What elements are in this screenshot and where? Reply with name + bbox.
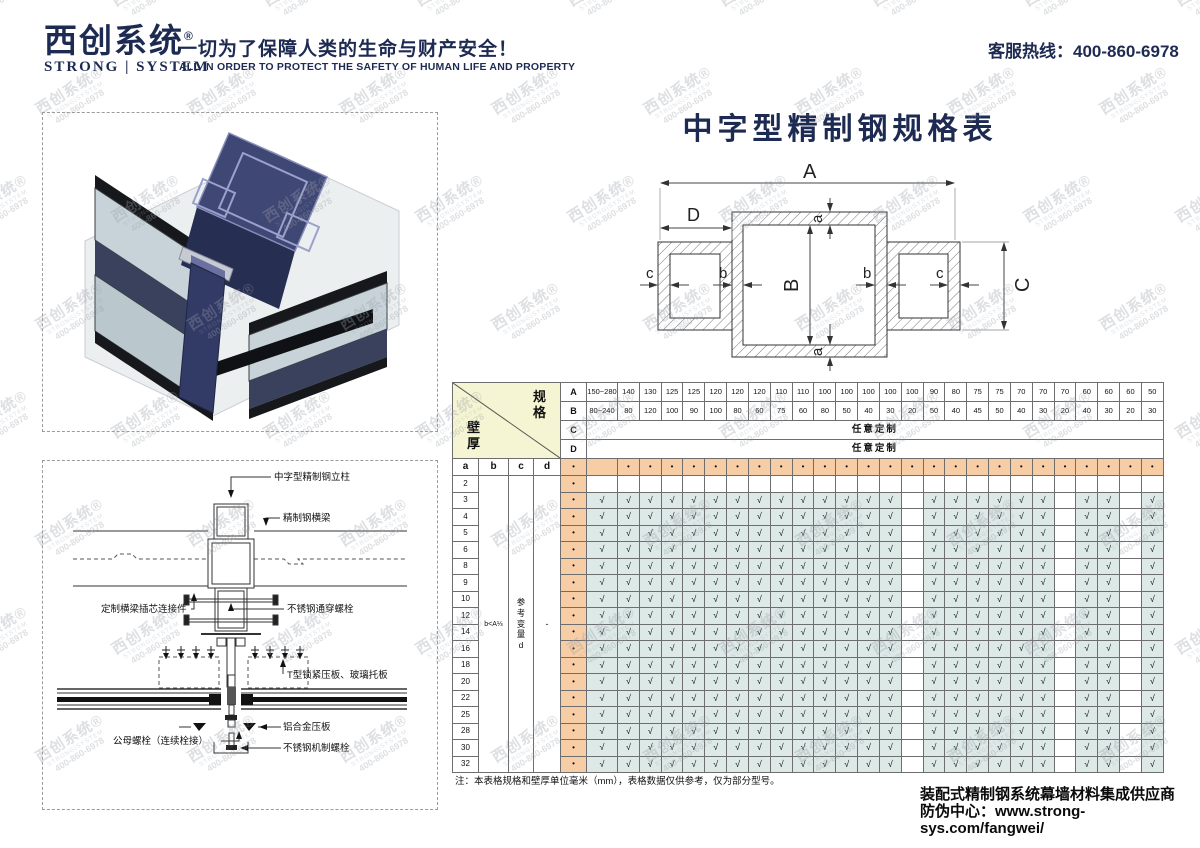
watermark: 西创系统®STRONG|SYSTEM400-860-6978: [489, 280, 570, 347]
dot-cell: •: [561, 624, 587, 641]
check-cell: √: [618, 657, 640, 674]
check-cell: √: [1010, 624, 1032, 641]
check-cell: √: [858, 558, 880, 575]
check-cell: √: [858, 707, 880, 724]
check-cell: √: [1141, 674, 1163, 691]
check-cell: √: [705, 756, 727, 773]
column-section: [208, 504, 254, 631]
check-cell: √: [858, 690, 880, 707]
empty-cell: [1120, 624, 1142, 641]
check-cell: √: [1141, 707, 1163, 724]
check-cell: √: [1032, 509, 1054, 526]
check-cell: √: [923, 509, 945, 526]
check-cell: √: [836, 740, 858, 757]
check-cell: √: [792, 591, 814, 608]
dot-cell: •: [561, 740, 587, 757]
watermark: 西创系统®STRONG|SYSTEM400-860-6978: [413, 0, 494, 23]
render-3d: [43, 113, 437, 431]
check-cell: √: [792, 525, 814, 542]
spec-value-cell: 45: [967, 402, 989, 421]
empty-cell: [1098, 476, 1120, 493]
spec-value-cell: 80: [727, 402, 749, 421]
check-cell: √: [748, 608, 770, 625]
check-cell: √: [661, 641, 683, 658]
check-cell: √: [587, 575, 618, 592]
dot-cell: •: [561, 641, 587, 658]
check-cell: √: [705, 509, 727, 526]
check-cell: √: [879, 657, 901, 674]
check-cell: √: [945, 492, 967, 509]
spec-value-cell: 110: [770, 383, 792, 402]
spec-value-cell: 30: [1141, 402, 1163, 421]
corner-header-cell: 规格壁厚: [453, 383, 561, 459]
watermark: 西创系统®STRONG|SYSTEM400-860-6978: [489, 64, 570, 131]
check-cell: √: [989, 624, 1011, 641]
spec-value-cell: 120: [705, 383, 727, 402]
spec-value-cell: 50: [923, 402, 945, 421]
thickness-value-cell: 16: [453, 641, 479, 658]
check-cell: √: [945, 558, 967, 575]
check-cell: √: [748, 723, 770, 740]
check-cell: √: [879, 674, 901, 691]
check-cell: √: [879, 542, 901, 559]
check-cell: √: [587, 591, 618, 608]
check-cell: √: [1032, 641, 1054, 658]
check-cell: √: [770, 723, 792, 740]
empty-cell: [1120, 492, 1142, 509]
check-cell: √: [989, 525, 1011, 542]
check-cell: √: [705, 591, 727, 608]
thickness-value-cell: 5: [453, 525, 479, 542]
check-cell: √: [989, 756, 1011, 773]
empty-cell: [901, 591, 923, 608]
empty-cell: [705, 476, 727, 493]
empty-cell: [1054, 674, 1076, 691]
spec-value-cell: 30: [1098, 402, 1120, 421]
check-cell: √: [748, 624, 770, 641]
check-cell: √: [1010, 657, 1032, 674]
d-note-cell: -: [534, 476, 561, 773]
check-cell: √: [1141, 756, 1163, 773]
check-cell: √: [618, 641, 640, 658]
watermark: 西创系统®STRONG|SYSTEM400-860-6978: [1021, 0, 1102, 23]
check-cell: √: [748, 756, 770, 773]
thickness-value-cell: 18: [453, 657, 479, 674]
empty-cell: [901, 657, 923, 674]
check-cell: √: [618, 492, 640, 509]
check-cell: √: [858, 740, 880, 757]
check-cell: √: [587, 525, 618, 542]
check-cell: √: [858, 756, 880, 773]
check-cell: √: [1141, 740, 1163, 757]
check-cell: √: [989, 608, 1011, 625]
dot-cell: [587, 459, 618, 476]
check-cell: √: [1098, 641, 1120, 658]
check-cell: √: [618, 756, 640, 773]
dot-cell: •: [945, 459, 967, 476]
watermark: 西创系统®STRONG|SYSTEM400-860-6978: [717, 0, 798, 23]
thickness-col-header: c: [509, 459, 534, 476]
check-cell: √: [1098, 608, 1120, 625]
check-cell: √: [727, 492, 749, 509]
empty-cell: [1054, 756, 1076, 773]
empty-cell: [748, 476, 770, 493]
spec-row-label: D: [561, 440, 587, 459]
spec-value-cell: 60: [1098, 383, 1120, 402]
empty-cell: [1054, 657, 1076, 674]
footer-line2: 防伪中心：www.strong-sys.com/fangwei/: [920, 803, 1200, 837]
empty-cell: [901, 509, 923, 526]
dim-c-right: c: [936, 265, 944, 282]
empty-cell: [1032, 476, 1054, 493]
check-cell: √: [923, 723, 945, 740]
dim-C: C: [1012, 278, 1034, 292]
empty-cell: [923, 476, 945, 493]
check-cell: √: [727, 624, 749, 641]
check-cell: √: [705, 492, 727, 509]
check-cell: √: [836, 575, 858, 592]
check-cell: √: [1032, 624, 1054, 641]
dot-cell: •: [561, 690, 587, 707]
page: 西创系统® STRONG | SYSTEM 一切为了保障人类的生命与财产安全！ …: [0, 0, 1200, 848]
check-cell: √: [618, 591, 640, 608]
check-cell: √: [1141, 690, 1163, 707]
check-cell: √: [683, 674, 705, 691]
dot-cell: •: [561, 674, 587, 691]
check-cell: √: [683, 509, 705, 526]
spec-value-cell: 130: [639, 383, 661, 402]
empty-cell: [661, 476, 683, 493]
check-cell: √: [748, 674, 770, 691]
check-cell: √: [1010, 707, 1032, 724]
check-cell: √: [836, 542, 858, 559]
spec-value-cell: 100: [879, 383, 901, 402]
empty-cell: [1054, 525, 1076, 542]
check-cell: √: [639, 674, 661, 691]
dot-cell: •: [661, 459, 683, 476]
check-cell: √: [967, 674, 989, 691]
check-cell: √: [1076, 723, 1098, 740]
check-cell: √: [989, 558, 1011, 575]
check-cell: √: [1076, 624, 1098, 641]
empty-cell: [901, 492, 923, 509]
check-cell: √: [705, 575, 727, 592]
check-cell: √: [587, 492, 618, 509]
empty-cell: [901, 674, 923, 691]
check-cell: √: [1010, 558, 1032, 575]
check-cell: √: [814, 723, 836, 740]
check-cell: √: [770, 624, 792, 641]
empty-cell: [1120, 542, 1142, 559]
check-cell: √: [945, 591, 967, 608]
empty-cell: [901, 476, 923, 493]
empty-cell: [1054, 690, 1076, 707]
check-cell: √: [945, 509, 967, 526]
check-cell: √: [967, 575, 989, 592]
check-cell: √: [587, 740, 618, 757]
thickness-value-cell: 4: [453, 509, 479, 526]
cross-section-wrap: A D a a B C b b c c: [615, 160, 1045, 390]
check-cell: √: [1010, 509, 1032, 526]
check-cell: √: [587, 509, 618, 526]
empty-cell: [639, 476, 661, 493]
empty-cell: [1120, 657, 1142, 674]
dot-cell: •: [814, 459, 836, 476]
check-cell: √: [792, 723, 814, 740]
check-cell: √: [945, 624, 967, 641]
check-cell: √: [683, 575, 705, 592]
check-cell: √: [639, 492, 661, 509]
check-cell: √: [1098, 690, 1120, 707]
check-cell: √: [1098, 674, 1120, 691]
spec-value-cell: 20: [1054, 402, 1076, 421]
check-cell: √: [945, 674, 967, 691]
check-cell: √: [923, 707, 945, 724]
check-cell: √: [967, 525, 989, 542]
check-cell: √: [923, 690, 945, 707]
check-cell: √: [748, 641, 770, 658]
empty-cell: [901, 525, 923, 542]
dot-cell: •: [561, 542, 587, 559]
check-cell: √: [705, 707, 727, 724]
check-cell: √: [661, 756, 683, 773]
dot-cell: •: [879, 459, 901, 476]
empty-cell: [901, 542, 923, 559]
check-cell: √: [587, 756, 618, 773]
check-cell: √: [814, 525, 836, 542]
dot-cell: •: [923, 459, 945, 476]
check-cell: √: [683, 641, 705, 658]
check-cell: √: [967, 740, 989, 757]
thickness-value-cell: 32: [453, 756, 479, 773]
check-cell: √: [639, 591, 661, 608]
check-cell: √: [989, 575, 1011, 592]
check-cell: √: [618, 624, 640, 641]
check-cell: √: [967, 690, 989, 707]
check-cell: √: [639, 690, 661, 707]
dot-cell: •: [858, 459, 880, 476]
check-cell: √: [1032, 558, 1054, 575]
spec-value-cell: 80: [618, 402, 640, 421]
check-cell: √: [705, 624, 727, 641]
check-cell: √: [727, 707, 749, 724]
check-cell: √: [683, 558, 705, 575]
check-cell: √: [814, 575, 836, 592]
spec-value-cell: 40: [945, 402, 967, 421]
check-cell: √: [639, 525, 661, 542]
dot-cell: •: [989, 459, 1011, 476]
check-cell: √: [945, 657, 967, 674]
dot-cell: •: [561, 492, 587, 509]
spec-value-cell: 140: [618, 383, 640, 402]
check-cell: √: [1010, 591, 1032, 608]
check-cell: √: [661, 525, 683, 542]
check-cell: √: [639, 723, 661, 740]
spec-value-cell: 40: [858, 402, 880, 421]
check-cell: √: [858, 492, 880, 509]
spec-value-cell: 75: [967, 383, 989, 402]
check-cell: √: [923, 608, 945, 625]
check-cell: √: [618, 674, 640, 691]
dot-cell: •: [1010, 459, 1032, 476]
check-cell: √: [967, 723, 989, 740]
check-cell: √: [989, 707, 1011, 724]
spec-value-cell: 100: [814, 383, 836, 402]
check-cell: √: [1076, 756, 1098, 773]
check-cell: √: [727, 674, 749, 691]
check-cell: √: [836, 558, 858, 575]
check-cell: √: [1098, 575, 1120, 592]
dot-cell: •: [792, 459, 814, 476]
label-male-female-bolt: 公母螺栓（连续栓接）: [113, 735, 208, 747]
check-cell: √: [705, 558, 727, 575]
check-cell: √: [1076, 608, 1098, 625]
check-cell: √: [945, 525, 967, 542]
check-cell: √: [923, 492, 945, 509]
thickness-value-cell: 30: [453, 740, 479, 757]
check-cell: √: [683, 591, 705, 608]
empty-cell: [879, 476, 901, 493]
check-cell: √: [836, 641, 858, 658]
empty-cell: [1054, 476, 1076, 493]
watermark: 西创系统®STRONG|SYSTEM400-860-6978: [109, 0, 190, 23]
section-body: [658, 212, 960, 357]
dim-a-bottom: a: [809, 347, 826, 356]
spec-value-cell: 80~240: [587, 402, 618, 421]
check-cell: √: [923, 674, 945, 691]
label-alu-plate: 铝合金压板: [283, 721, 331, 733]
check-cell: √: [858, 674, 880, 691]
check-cell: √: [814, 558, 836, 575]
check-cell: √: [814, 756, 836, 773]
check-cell: √: [989, 723, 1011, 740]
empty-cell: [1120, 690, 1142, 707]
check-cell: √: [1010, 492, 1032, 509]
check-cell: √: [989, 657, 1011, 674]
spec-value-cell: 80: [814, 402, 836, 421]
check-cell: √: [1010, 608, 1032, 625]
check-cell: √: [748, 542, 770, 559]
through-bolts: [184, 595, 278, 625]
thickness-value-cell: 8: [453, 558, 479, 575]
check-cell: √: [639, 756, 661, 773]
watermark: 西创系统®STRONG|SYSTEM400-860-6978: [1173, 604, 1200, 671]
check-cell: √: [923, 591, 945, 608]
dot-cell: •: [901, 459, 923, 476]
check-cell: √: [923, 624, 945, 641]
check-cell: √: [989, 492, 1011, 509]
check-cell: √: [879, 740, 901, 757]
watermark: 西创系统®STRONG|SYSTEM400-860-6978: [0, 0, 39, 23]
check-cell: √: [945, 575, 967, 592]
check-cell: √: [967, 641, 989, 658]
check-cell: √: [705, 542, 727, 559]
check-cell: √: [836, 525, 858, 542]
empty-cell: [814, 476, 836, 493]
empty-cell: [901, 641, 923, 658]
check-cell: √: [705, 740, 727, 757]
check-cell: √: [705, 690, 727, 707]
check-cell: √: [618, 525, 640, 542]
check-cell: √: [967, 657, 989, 674]
dim-a-top: a: [809, 214, 826, 223]
spec-value-cell: 60: [792, 402, 814, 421]
spec-table: 规格壁厚 A150~280140130125125120120120110110…: [452, 382, 1164, 773]
check-cell: √: [1076, 740, 1098, 757]
check-cell: √: [989, 542, 1011, 559]
spec-value-cell: 75: [770, 402, 792, 421]
empty-cell: [901, 707, 923, 724]
spec-value-cell: 20: [1120, 402, 1142, 421]
thickness-value-cell: 28: [453, 723, 479, 740]
check-cell: √: [770, 525, 792, 542]
check-cell: √: [770, 492, 792, 509]
check-cell: √: [661, 542, 683, 559]
spec-value-cell: 110: [792, 383, 814, 402]
check-cell: √: [1010, 756, 1032, 773]
check-cell: √: [618, 608, 640, 625]
check-cell: √: [792, 624, 814, 641]
check-cell: √: [967, 624, 989, 641]
check-cell: √: [683, 707, 705, 724]
check-cell: √: [618, 575, 640, 592]
empty-cell: [901, 756, 923, 773]
dot-cell: •: [561, 509, 587, 526]
check-cell: √: [1076, 542, 1098, 559]
check-cell: √: [792, 690, 814, 707]
check-cell: √: [1141, 723, 1163, 740]
check-cell: √: [683, 740, 705, 757]
empty-cell: [1120, 525, 1142, 542]
check-cell: √: [1076, 657, 1098, 674]
empty-cell: [1120, 641, 1142, 658]
tagline-en: ALL IN ORDER TO PROTECT THE SAFETY OF HU…: [179, 61, 575, 73]
check-cell: √: [1141, 591, 1163, 608]
empty-cell: [727, 476, 749, 493]
check-cell: √: [618, 558, 640, 575]
check-cell: √: [705, 525, 727, 542]
check-cell: √: [1010, 723, 1032, 740]
spec-value-cell: 150~280: [587, 383, 618, 402]
check-cell: √: [836, 608, 858, 625]
check-cell: √: [1010, 641, 1032, 658]
empty-cell: [683, 476, 705, 493]
check-cell: √: [705, 723, 727, 740]
footer: 装配式精制钢系统幕墙材料集成供应商 防伪中心：www.strong-sys.co…: [920, 786, 1200, 837]
empty-cell: [901, 608, 923, 625]
check-cell: √: [1098, 591, 1120, 608]
spec-value-cell: 100: [858, 383, 880, 402]
check-cell: √: [1076, 509, 1098, 526]
spec-value-cell: 100: [901, 383, 923, 402]
check-cell: √: [792, 492, 814, 509]
empty-cell: [858, 476, 880, 493]
check-cell: √: [1098, 558, 1120, 575]
check-cell: √: [1032, 542, 1054, 559]
check-cell: √: [792, 608, 814, 625]
dot-cell: •: [836, 459, 858, 476]
check-cell: √: [748, 657, 770, 674]
check-cell: √: [945, 723, 967, 740]
check-cell: √: [1098, 723, 1120, 740]
check-cell: √: [639, 608, 661, 625]
check-cell: √: [770, 509, 792, 526]
check-cell: √: [661, 575, 683, 592]
check-cell: √: [618, 740, 640, 757]
dim-c-left: c: [646, 265, 654, 282]
spec-value-cell: 60: [1076, 383, 1098, 402]
label-through-bolt: 不锈钢通穿螺栓: [287, 603, 354, 615]
